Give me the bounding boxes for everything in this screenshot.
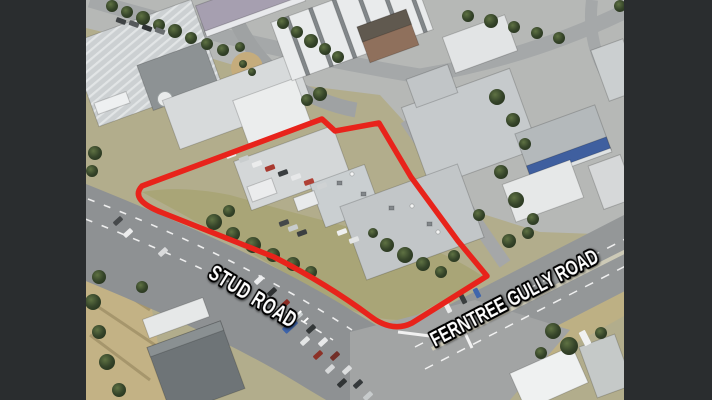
right-letterbox [624,0,712,400]
aerial-photo: STUD ROAD FERNTREE GULLY ROAD [0,0,712,400]
left-letterbox [0,0,86,400]
screenshot: STUD ROAD FERNTREE GULLY ROAD [0,0,712,400]
